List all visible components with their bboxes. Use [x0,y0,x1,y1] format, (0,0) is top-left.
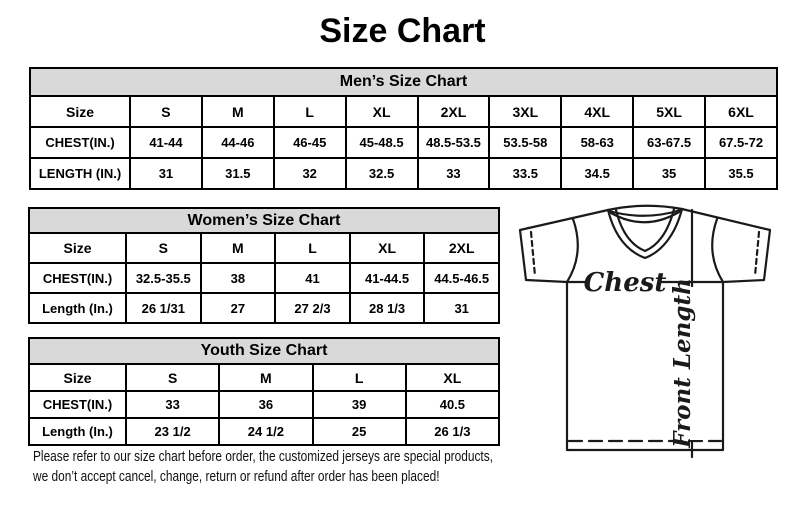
value-cell: 48.5-53.5 [418,127,490,158]
value-cell: 45-48.5 [346,127,418,158]
youth-table-title: Youth Size Chart [29,338,499,364]
size-header-cell: L [275,233,350,263]
shirt-measurement-diagram: Chest Front Length [505,195,805,512]
value-cell: 39 [313,391,406,418]
value-cell: 27 [201,293,276,323]
row-label-cell: CHEST(IN.) [29,263,126,293]
size-header-cell: XL [346,96,418,127]
value-cell: 67.5-72 [705,127,777,158]
value-cell: 31 [130,158,202,189]
size-header-cell: M [201,233,276,263]
value-cell: 33.5 [489,158,561,189]
value-cell: 44.5-46.5 [424,263,499,293]
value-cell: 34.5 [561,158,633,189]
size-chart-page: Size Chart Men’s Size ChartSizeSMLXL2XL3… [0,0,805,512]
size-header-cell: L [274,96,346,127]
size-header-cell: 2XL [418,96,490,127]
size-header-cell: 6XL [705,96,777,127]
size-header-cell: M [202,96,274,127]
value-cell: 23 1/2 [126,418,219,445]
size-header-cell: 2XL [424,233,499,263]
value-cell: 41-44.5 [350,263,425,293]
youth-table-row: SizeSMLXL [29,364,499,391]
womens-table-title: Women’s Size Chart [29,208,499,233]
shirt-outline [520,209,770,450]
front-length-label: Front Length [669,278,696,449]
order-policy-note-line2: we don’t accept cancel, change, return o… [33,467,443,487]
value-cell: 33 [418,158,490,189]
size-header-cell: 3XL [489,96,561,127]
v-neck-collar [608,206,682,258]
size-header-cell: S [126,364,219,391]
row-label-cell: Size [29,364,126,391]
value-cell: 46-45 [274,127,346,158]
row-label-cell: Length (In.) [29,418,126,445]
value-cell: 26 1/3 [406,418,499,445]
value-cell: 32 [274,158,346,189]
size-header-cell: S [130,96,202,127]
value-cell: 35.5 [705,158,777,189]
size-header-cell: 4XL [561,96,633,127]
size-header-cell: XL [406,364,499,391]
mens-table-row: SizeSMLXL2XL3XL4XL5XL6XL [30,96,777,127]
value-cell: 25 [313,418,406,445]
row-label-cell: LENGTH (IN.) [30,158,130,189]
order-policy-note-line1: Please refer to our size chart before or… [33,447,443,467]
chest-label: Chest [584,268,667,298]
value-cell: 38 [201,263,276,293]
value-cell: 28 1/3 [350,293,425,323]
row-label-cell: CHEST(IN.) [30,127,130,158]
value-cell: 27 2/3 [275,293,350,323]
youth-size-table: Youth Size ChartSizeSMLXLCHEST(IN.)33363… [28,337,500,446]
value-cell: 24 1/2 [219,418,312,445]
value-cell: 40.5 [406,391,499,418]
row-label-cell: Size [29,233,126,263]
size-header-cell: 5XL [633,96,705,127]
mens-table-title: Men’s Size Chart [30,68,777,96]
size-header-cell: M [219,364,312,391]
value-cell: 31 [424,293,499,323]
value-cell: 32.5-35.5 [126,263,201,293]
mens-size-table: Men’s Size ChartSizeSMLXL2XL3XL4XL5XL6XL… [29,67,778,190]
youth-table-row: CHEST(IN.)33363940.5 [29,391,499,418]
size-header-cell: S [126,233,201,263]
mens-table-row: LENGTH (IN.)3131.53232.53333.534.53535.5 [30,158,777,189]
value-cell: 58-63 [561,127,633,158]
value-cell: 26 1/31 [126,293,201,323]
value-cell: 35 [633,158,705,189]
womens-table-row: SizeSMLXL2XL [29,233,499,263]
youth-table-row: Length (In.)23 1/224 1/22526 1/3 [29,418,499,445]
womens-table-row: CHEST(IN.)32.5-35.5384141-44.544.5-46.5 [29,263,499,293]
value-cell: 32.5 [346,158,418,189]
order-policy-note: Please refer to our size chart before or… [33,447,533,487]
value-cell: 41 [275,263,350,293]
value-cell: 63-67.5 [633,127,705,158]
row-label-cell: CHEST(IN.) [29,391,126,418]
row-label-cell: Size [30,96,130,127]
row-label-cell: Length (In.) [29,293,126,323]
size-header-cell: XL [350,233,425,263]
page-title: Size Chart [0,12,805,51]
value-cell: 31.5 [202,158,274,189]
value-cell: 36 [219,391,312,418]
size-header-cell: L [313,364,406,391]
value-cell: 44-46 [202,127,274,158]
value-cell: 53.5-58 [489,127,561,158]
womens-size-table: Women’s Size ChartSizeSMLXL2XLCHEST(IN.)… [28,207,500,324]
womens-table-row: Length (In.)26 1/312727 2/328 1/331 [29,293,499,323]
value-cell: 33 [126,391,219,418]
value-cell: 41-44 [130,127,202,158]
mens-table-row: CHEST(IN.)41-4444-4646-4545-48.548.5-53.… [30,127,777,158]
